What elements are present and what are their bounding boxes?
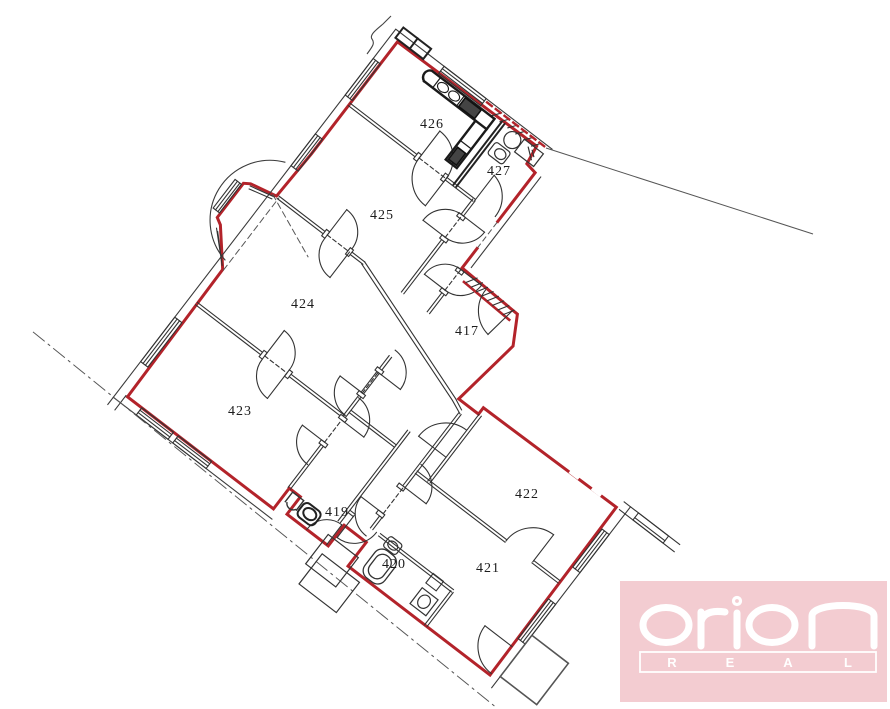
svg-text:A: A [783, 655, 793, 670]
svg-text:425: 425 [370, 208, 394, 223]
svg-text:E: E [726, 655, 735, 670]
svg-text:423: 423 [228, 404, 252, 419]
svg-text:422: 422 [515, 487, 539, 502]
svg-text:427: 427 [487, 164, 511, 179]
svg-text:421: 421 [476, 561, 500, 576]
svg-text:L: L [844, 655, 852, 670]
svg-text:424: 424 [291, 297, 315, 312]
svg-text:417: 417 [455, 324, 479, 339]
svg-text:420: 420 [382, 557, 406, 572]
svg-text:426: 426 [420, 117, 444, 132]
svg-text:419: 419 [325, 505, 349, 520]
svg-text:R: R [667, 655, 677, 670]
